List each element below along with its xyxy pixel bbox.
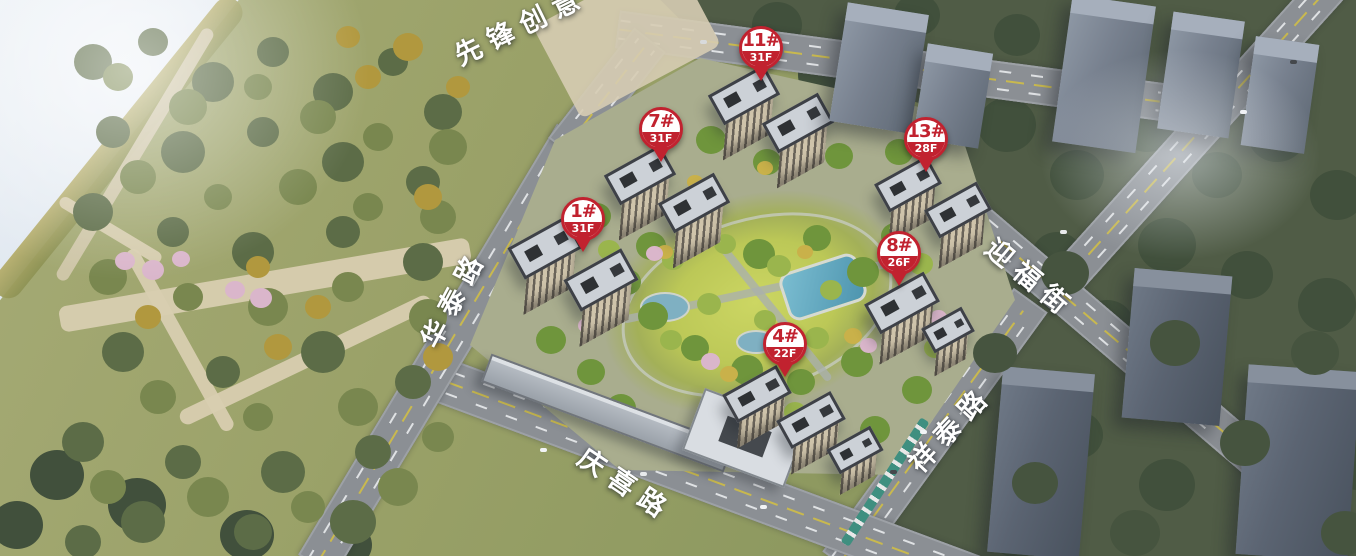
context-tower bbox=[1122, 268, 1233, 426]
pin-floor-count: 22F bbox=[766, 347, 804, 363]
cars bbox=[0, 0, 7, 4]
building-pin-7[interactable]: 7# 31F bbox=[639, 107, 683, 162]
building-pin-4[interactable]: 4# 22F bbox=[763, 322, 807, 377]
pin-tail-icon bbox=[652, 147, 670, 162]
pin-floor-count: 31F bbox=[742, 51, 780, 67]
pin-building-number: 4# bbox=[766, 326, 804, 347]
pin-floor-count: 28F bbox=[907, 142, 945, 158]
context-tower bbox=[1236, 364, 1356, 556]
pin-tail-icon bbox=[890, 271, 908, 286]
building-pin-8[interactable]: 8# 26F bbox=[877, 231, 921, 286]
pond bbox=[640, 292, 690, 322]
context-tower bbox=[987, 366, 1095, 556]
building-pin-1[interactable]: 1# 31F bbox=[561, 197, 605, 252]
building-pin-11[interactable]: 11# 31F bbox=[739, 26, 783, 81]
pin-tail-icon bbox=[574, 237, 592, 252]
pin-head: 4# 22F bbox=[763, 322, 807, 366]
pin-floor-count: 26F bbox=[880, 256, 918, 272]
park-path bbox=[124, 247, 236, 434]
pin-building-number: 1# bbox=[564, 201, 602, 222]
pin-floor-count: 31F bbox=[564, 222, 602, 238]
pin-head: 13# 28F bbox=[904, 117, 948, 161]
pin-building-number: 7# bbox=[642, 111, 680, 132]
pin-floor-count: 31F bbox=[642, 132, 680, 148]
pin-head: 8# 26F bbox=[877, 231, 921, 275]
building-pin-13[interactable]: 13# 28F bbox=[904, 117, 948, 172]
pin-head: 1# 31F bbox=[561, 197, 605, 241]
pin-head: 11# 31F bbox=[739, 26, 783, 70]
masterplan-rendering: 先锋创意华泰路迎福街祥泰路庆喜路 1# 31F 4# 22F 7# 31F 8#… bbox=[0, 0, 1356, 556]
pin-building-number: 8# bbox=[880, 235, 918, 256]
pin-tail-icon bbox=[917, 157, 935, 172]
pin-tail-icon bbox=[776, 362, 794, 377]
pin-building-number: 11# bbox=[742, 30, 780, 51]
pin-head: 7# 31F bbox=[639, 107, 683, 151]
pin-building-number: 13# bbox=[907, 121, 945, 142]
pin-tail-icon bbox=[752, 66, 770, 81]
